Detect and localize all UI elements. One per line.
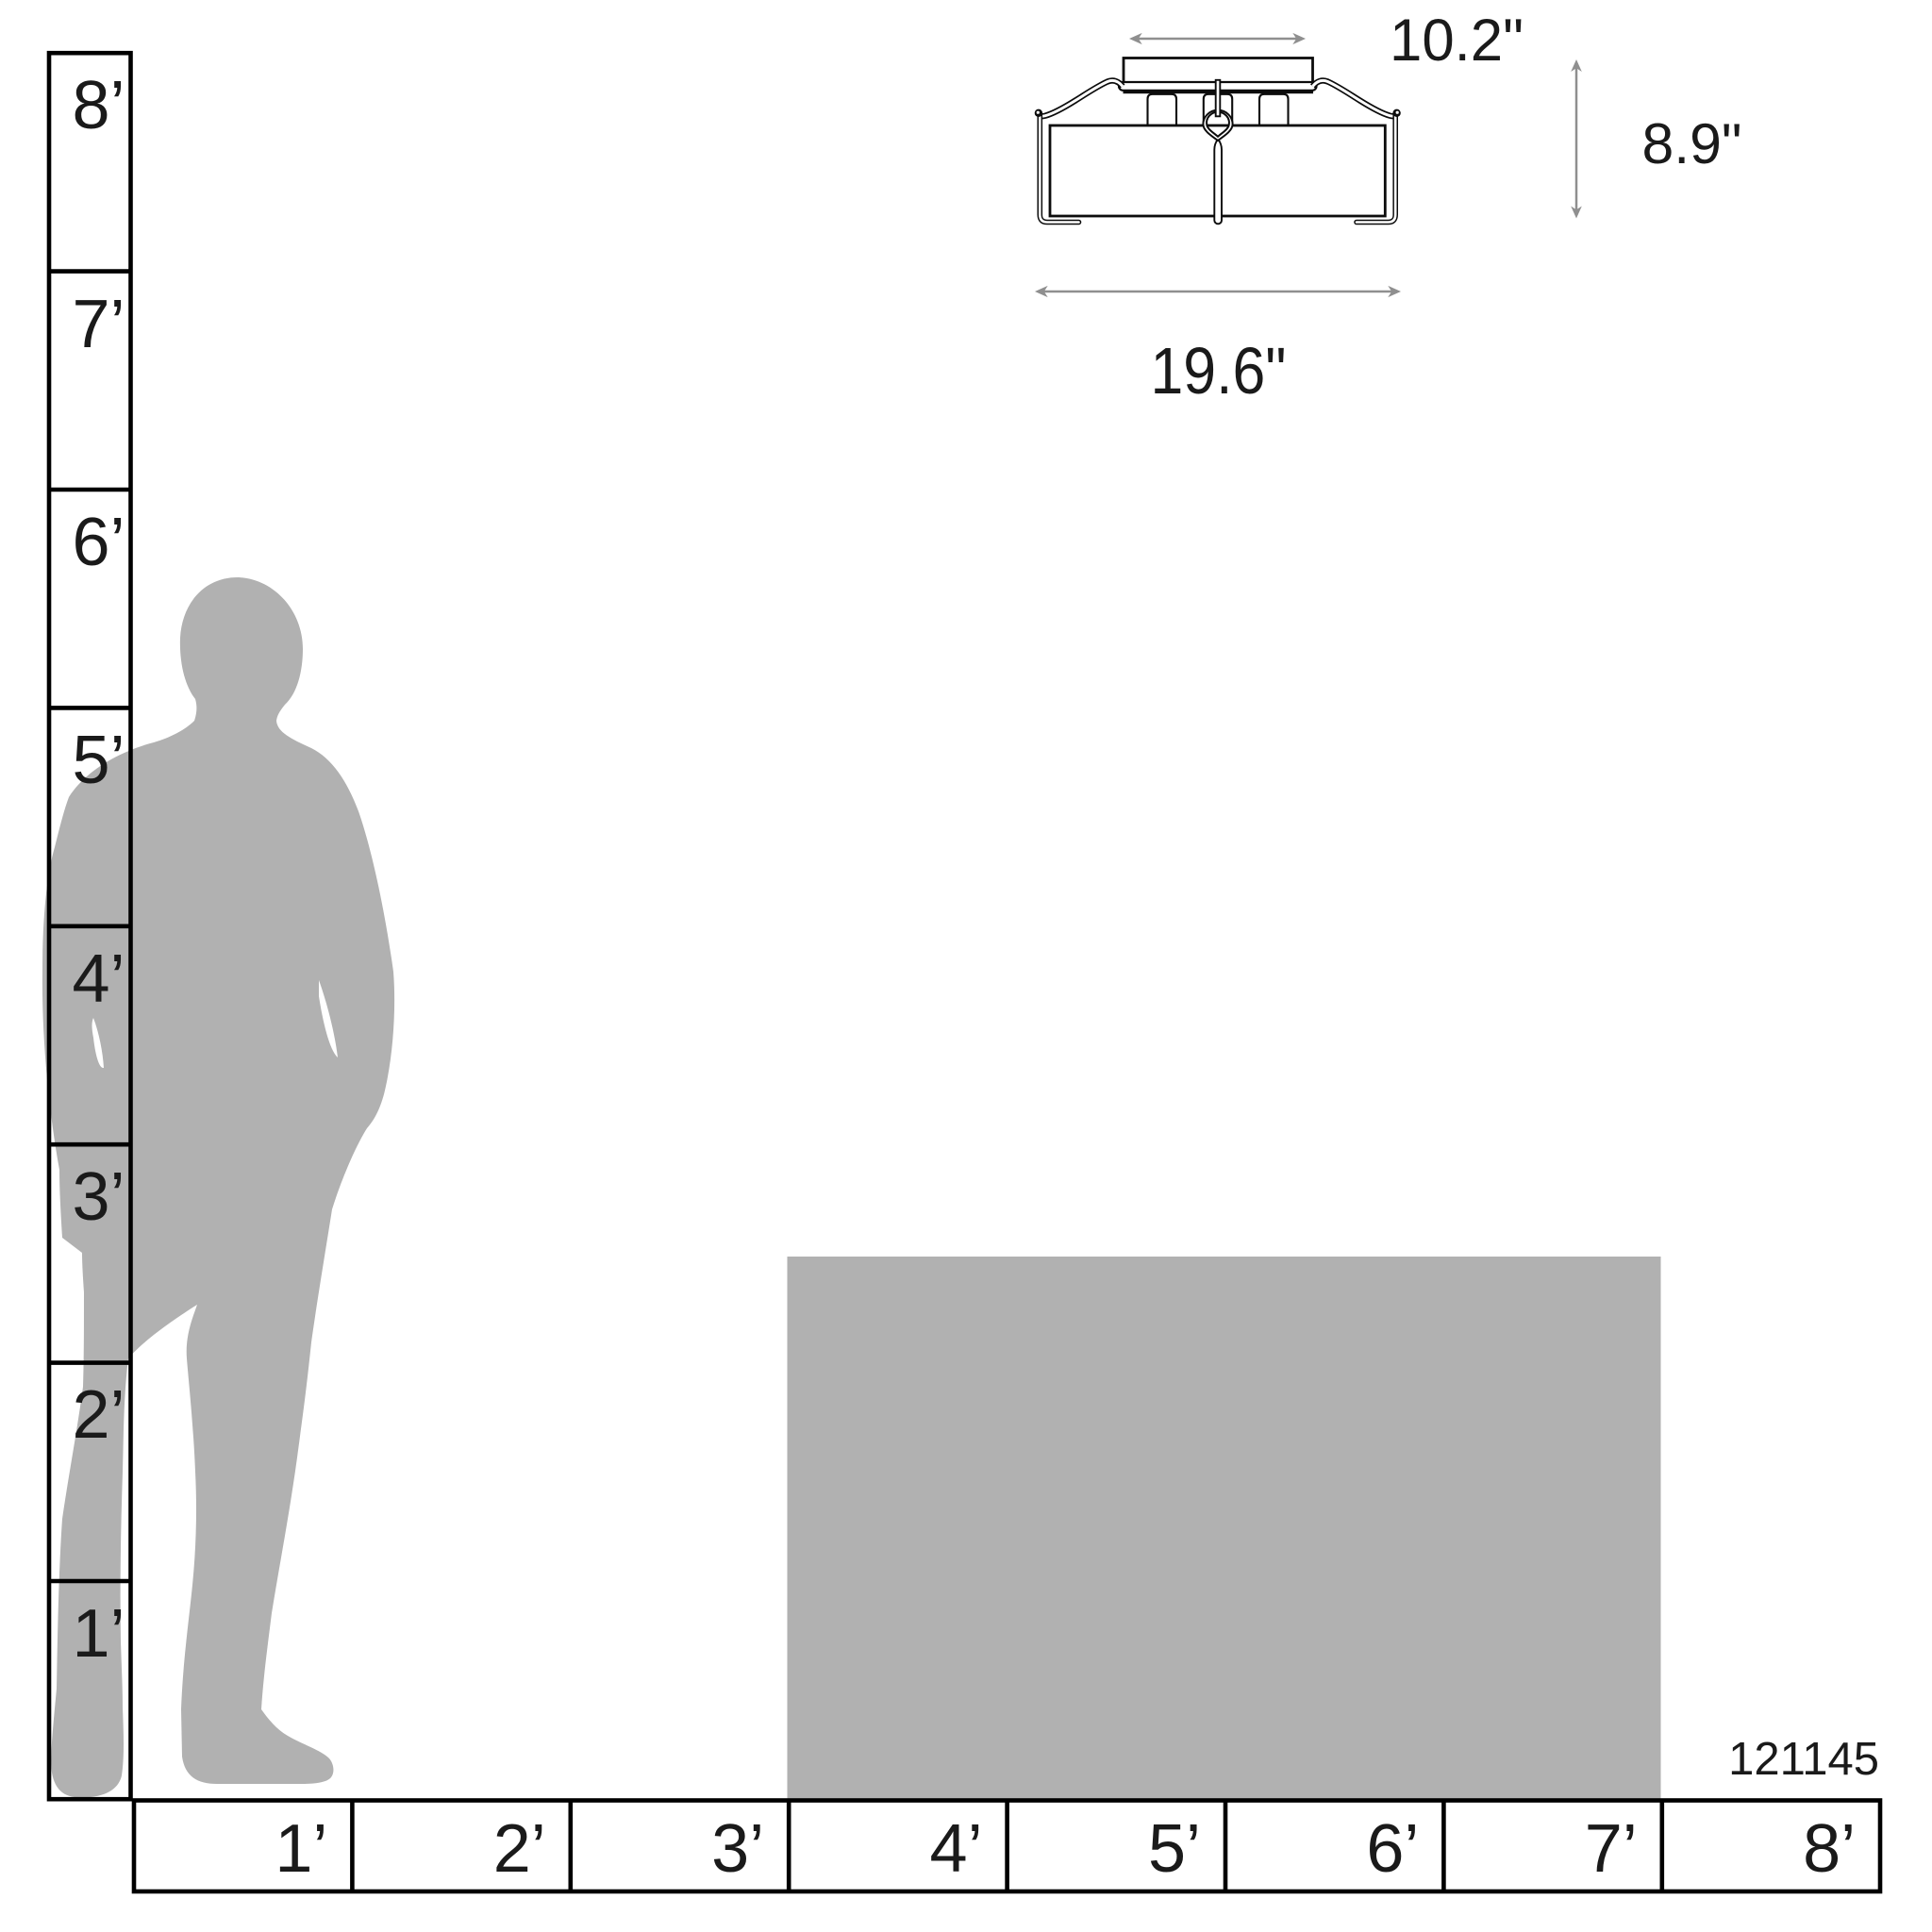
svg-text:2’: 2’	[493, 1811, 546, 1887]
svg-text:2’: 2’	[73, 1377, 125, 1453]
svg-text:3’: 3’	[73, 1159, 125, 1235]
svg-text:7’: 7’	[1585, 1811, 1638, 1887]
svg-text:6’: 6’	[1366, 1811, 1419, 1887]
svg-text:5’: 5’	[73, 723, 125, 798]
svg-text:6’: 6’	[73, 505, 125, 580]
svg-text:4’: 4’	[930, 1811, 983, 1887]
svg-text:121145: 121145	[1728, 1734, 1879, 1785]
svg-text:19.6": 19.6"	[1151, 334, 1287, 408]
svg-text:8’: 8’	[73, 68, 125, 143]
svg-text:1’: 1’	[73, 1596, 125, 1672]
svg-text:10.2": 10.2"	[1390, 8, 1524, 74]
svg-text:7’: 7’	[73, 287, 125, 362]
svg-text:3’: 3’	[711, 1811, 764, 1887]
svg-text:8.9": 8.9"	[1642, 112, 1742, 175]
svg-text:8’: 8’	[1803, 1811, 1856, 1887]
svg-text:4’: 4’	[73, 941, 125, 1017]
svg-text:1’: 1’	[275, 1811, 327, 1887]
svg-text:5’: 5’	[1148, 1811, 1201, 1887]
